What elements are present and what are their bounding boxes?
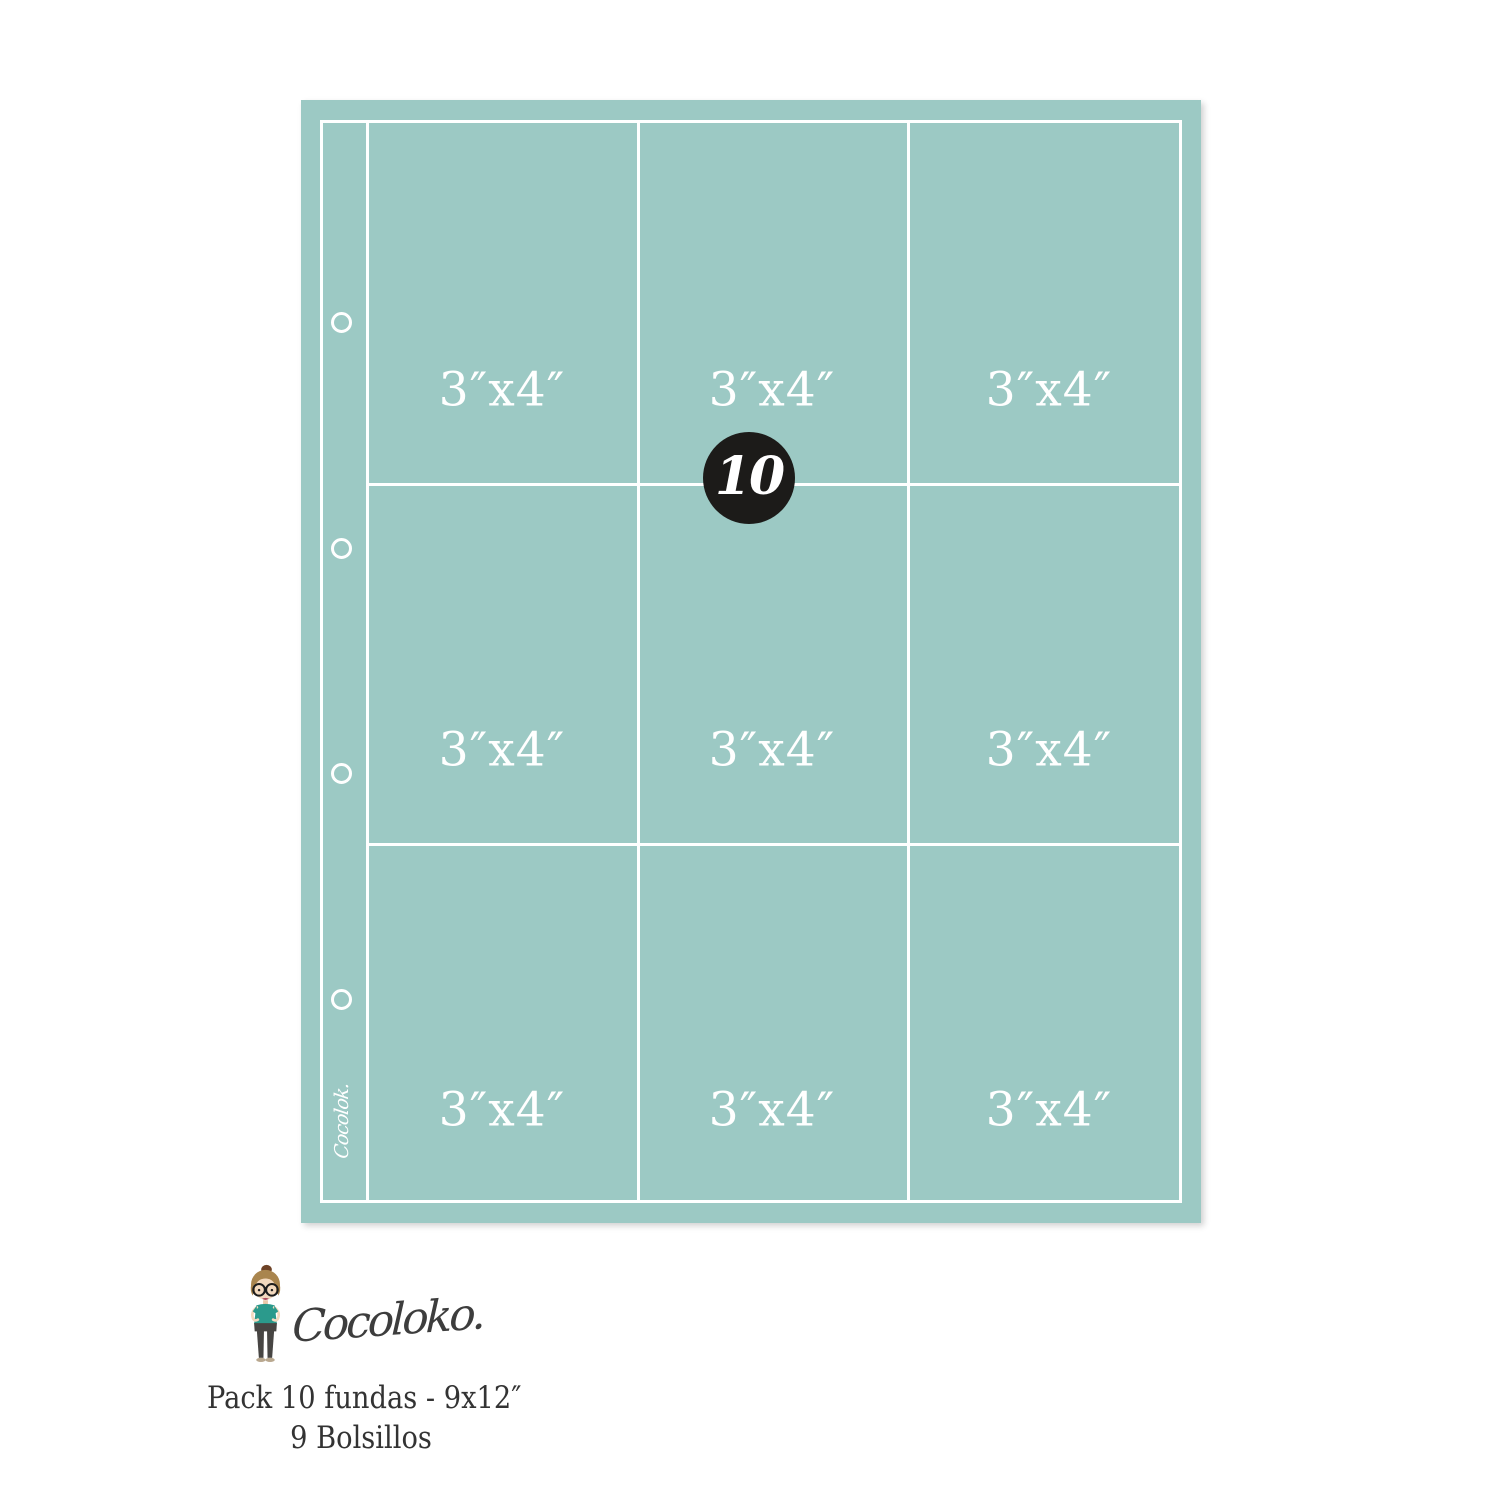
pocket-size-label: 3″x4″ <box>439 723 565 778</box>
pocket-size-label: 3″x4″ <box>709 363 835 418</box>
product-image: Cocolok. 3″x4″ 3″x4″ 3″x4″ 3″x4″ 3″x4″ 3… <box>0 0 1500 1500</box>
pack-count-number: 10 <box>715 446 783 507</box>
sheet-inner-border <box>320 120 1182 1203</box>
pocket-size-label: 3″x4″ <box>439 363 565 418</box>
pocket-page-sheet: Cocolok. 3″x4″ 3″x4″ 3″x4″ 3″x4″ 3″x4″ 3… <box>301 100 1201 1223</box>
binder-hole-icon <box>331 538 352 559</box>
pocket-size-label: 3″x4″ <box>986 1083 1112 1138</box>
spine-divider-line <box>366 120 369 1203</box>
pocket-size-label: 3″x4″ <box>986 723 1112 778</box>
column-divider-line <box>637 120 640 1203</box>
row-divider-line <box>366 843 1182 846</box>
spine-brand-script: Cocolok. <box>331 1082 353 1160</box>
binder-hole-icon <box>331 763 352 784</box>
pocket-size-label: 3″x4″ <box>986 363 1112 418</box>
pocket-size-label: 3″x4″ <box>709 723 835 778</box>
brand-logo-script: Cocoloko. <box>291 1288 484 1353</box>
pocket-size-label: 3″x4″ <box>709 1083 835 1138</box>
mascot-girl-icon <box>243 1263 288 1367</box>
tagline-line1: Pack 10 fundas - 9x12″ <box>207 1378 515 1418</box>
column-divider-line <box>907 120 910 1203</box>
tagline-line2: 9 Bolsillos <box>207 1418 515 1458</box>
pack-count-badge: 10 <box>703 432 795 524</box>
product-tagline: Pack 10 fundas - 9x12″ 9 Bolsillos <box>207 1378 515 1458</box>
binder-hole-icon <box>331 989 352 1010</box>
pocket-size-label: 3″x4″ <box>439 1083 565 1138</box>
binder-hole-icon <box>331 312 352 333</box>
